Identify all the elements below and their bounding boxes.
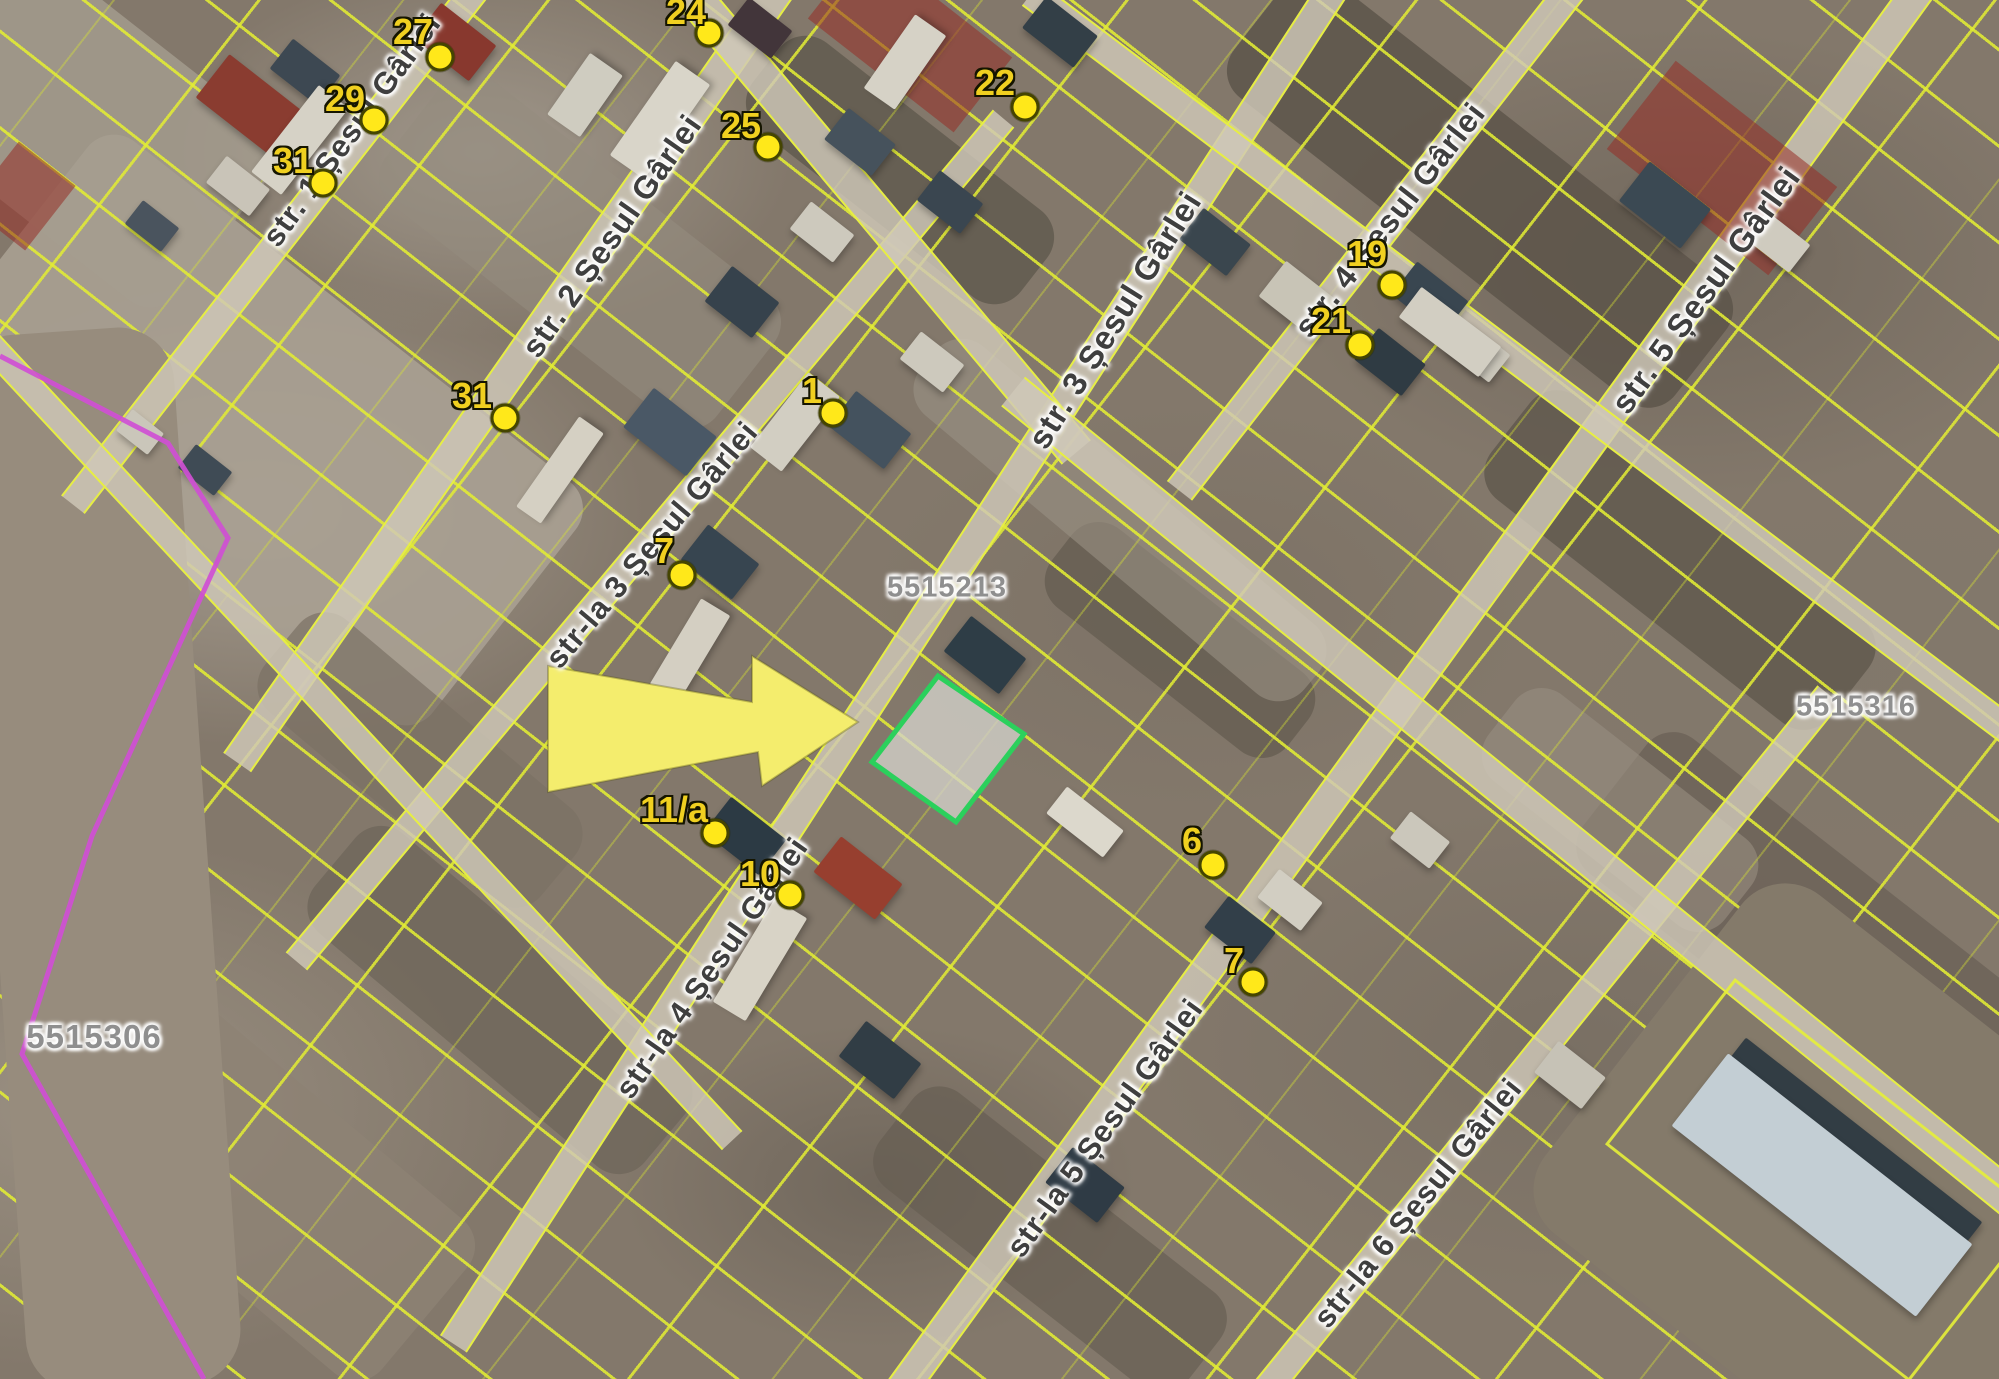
map-marker-label[interactable]: 29 [325,78,365,120]
satellite-map-canvas[interactable]: 551521355153065515316 str. 1 Șesul Gârle… [0,0,1999,1379]
map-marker-label[interactable]: 11/a [640,789,708,831]
map-marker-label[interactable]: 19 [1347,233,1387,275]
map-marker-label[interactable]: 6 [1182,820,1202,862]
marker-dot[interactable] [1199,851,1228,880]
markers-layer: 2729312425221921311711/a1067 [0,0,1999,1379]
map-marker-label[interactable]: 7 [1224,940,1244,982]
map-marker-label[interactable]: 21 [1311,300,1351,342]
map-marker-label[interactable]: 7 [654,530,674,572]
map-marker-label[interactable]: 24 [666,0,706,33]
map-marker-label[interactable]: 10 [740,853,780,895]
map-marker-label[interactable]: 1 [802,370,822,412]
map-marker-label[interactable]: 22 [975,62,1015,104]
marker-dot[interactable] [819,399,848,428]
map-marker-label[interactable]: 31 [452,375,492,417]
map-marker-label[interactable]: 25 [721,105,761,147]
map-marker-label[interactable]: 27 [393,11,433,53]
map-marker-label[interactable]: 31 [273,140,313,182]
marker-dot[interactable] [491,404,520,433]
